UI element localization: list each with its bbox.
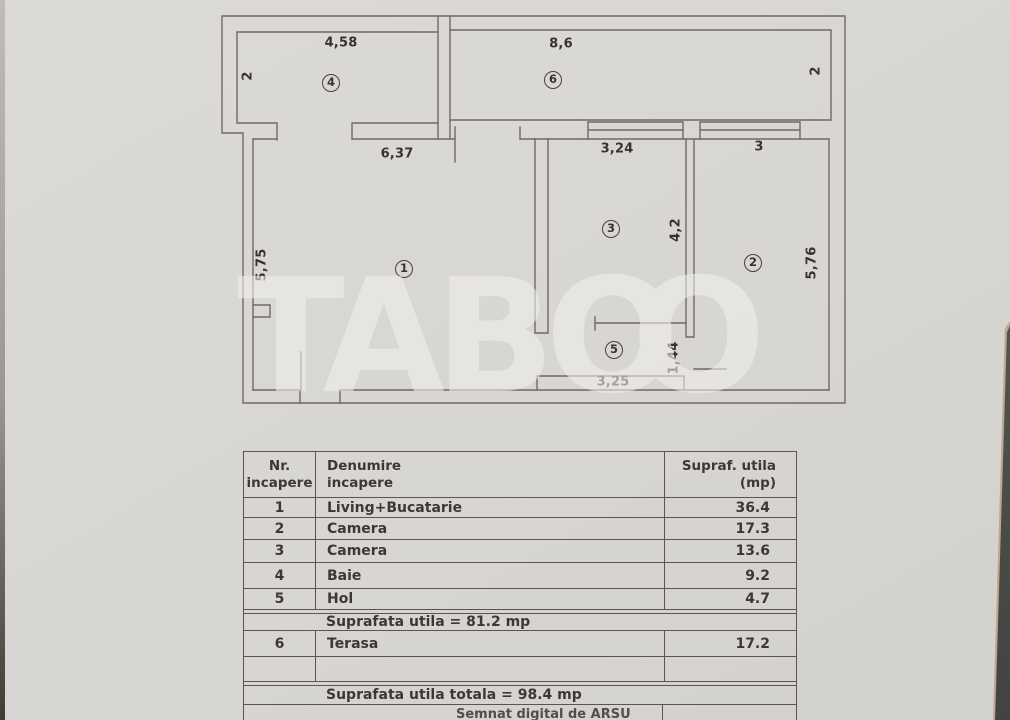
paper-edge-right <box>993 0 1010 720</box>
room-number-4: 4 <box>322 74 340 92</box>
dim-room1-height: 5,75 <box>255 249 270 282</box>
dim-room2-height: 5,76 <box>805 247 820 280</box>
digital-signature-text: Semnat digital de ARSU <box>456 707 631 720</box>
dim-room6-height: 2 <box>809 66 824 75</box>
room-number-3: 3 <box>602 220 620 238</box>
dim-room4-height: 2 <box>241 71 256 80</box>
room-number-2: 2 <box>744 254 762 272</box>
table-row-terasa: 6 Terasa 17.2 <box>244 631 796 657</box>
room-number-5: 5 <box>605 341 623 359</box>
table-row-camera3: 3 Camera 13.6 <box>244 540 796 563</box>
header-denumire-incapere: Denumire incapere <box>316 452 665 497</box>
total-text: Suprafata utila totala = 98.4 mp <box>326 687 582 703</box>
areas-table: Nr. incapere Denumire incapere Supraf. u… <box>243 451 797 720</box>
table-row-empty <box>244 657 796 682</box>
dim-room2-width: 3 <box>754 140 763 155</box>
dim-room6-width: 8,6 <box>549 37 573 52</box>
room-number-1: 1 <box>395 260 413 278</box>
header-suprafata-utila: Supraf. utila (mp) <box>665 452 796 497</box>
room-number-6: 6 <box>544 71 562 89</box>
dim-room4-width: 4,58 <box>325 36 358 51</box>
dim-room3-width: 3,24 <box>601 142 634 157</box>
scanned-floorplan-page: 4,58 2 8,6 2 6,37 5,75 3,24 4,2 3 5,76 1… <box>0 0 1010 720</box>
subtotal-text: Suprafata utila = 81.2 mp <box>326 614 530 630</box>
table-row-camera2: 2 Camera 17.3 <box>244 518 796 540</box>
dim-hall-height: 1,44 <box>667 342 682 375</box>
subtotal-row: Suprafata utila = 81.2 mp <box>244 614 796 631</box>
table-row-baie: 4 Baie 9.2 <box>244 563 796 589</box>
table-header-row: Nr. incapere Denumire incapere Supraf. u… <box>244 452 796 498</box>
dim-room3-height: 4,2 <box>669 218 684 242</box>
table-row-living: 1 Living+Bucatarie 36.4 <box>244 498 796 518</box>
dim-room1-width: 6,37 <box>381 147 414 162</box>
paper-edge-left <box>0 0 5 720</box>
header-nr-incapere: Nr. incapere <box>244 452 316 497</box>
floorplan-walls <box>222 16 845 403</box>
dim-hall-width: 3,25 <box>597 375 630 390</box>
table-row-hol: 5 Hol 4.7 <box>244 589 796 610</box>
total-row: Suprafata utila totala = 98.4 mp <box>244 686 796 705</box>
